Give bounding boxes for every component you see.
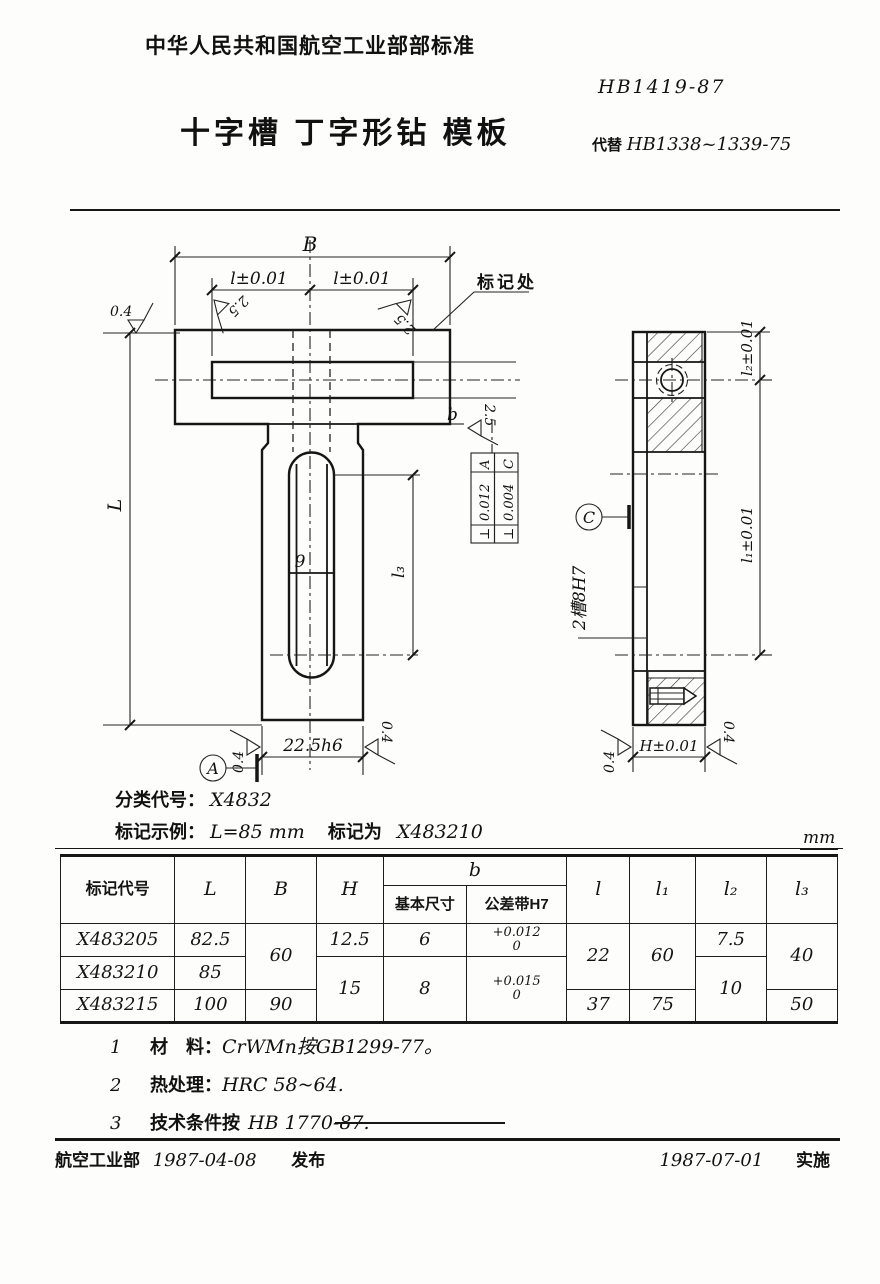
note-1-number: 1 [110, 1037, 150, 1058]
finish-04-botright-icon: 0.4 [365, 721, 395, 764]
cell-L-r2: 85 [175, 957, 246, 990]
cell-L-r3: 100 [175, 990, 246, 1023]
finish-04-side-right-value: 0.4 [720, 721, 736, 743]
document-title: 十字槽 丁字形钻 模板 [180, 108, 511, 152]
finish-25-right-icon: 2.5 [378, 288, 429, 339]
note-1: 1 材 料： CrWMn按GB1299-77。 [110, 1032, 443, 1059]
col-header-B: B [246, 856, 316, 924]
fcf1-symbol: ⊥ [478, 528, 493, 540]
hatch-top [648, 333, 702, 362]
finish-04-side-right-icon: 0.4 [707, 721, 737, 764]
finish-04-topleft-icon: 0.4 [110, 303, 153, 333]
col-header-l1: l₁ [630, 856, 695, 924]
finish-04-botright-value: 0.4 [378, 721, 394, 743]
cell-H-r1: 12.5 [316, 924, 383, 957]
fcf2-symbol: ⊥ [502, 528, 517, 540]
replaces-label: 代替 [592, 137, 622, 154]
notes-block: 1 材 料： CrWMn按GB1299-77。 2 热处理： HRC 58~64… [110, 1032, 443, 1135]
footer-impl: 1987-07-01 实施 [659, 1146, 830, 1171]
dim-l-lines [212, 278, 413, 356]
dim-width-label: 22.5h6 [282, 736, 343, 756]
marking-example-line: 标记示例： L=85 mm 标记为 X483210 [115, 818, 483, 844]
footer-issue-date: 1987-04-08 [153, 1150, 257, 1171]
cell-code-r3: X483215 [61, 990, 175, 1023]
dim-H-label: H±0.01 [638, 737, 698, 755]
slot-callout-label: 2槽8H7 [570, 566, 590, 631]
standard-document-page: { "header": { "org_standard": "中华人民共和国航空… [0, 0, 880, 1284]
cell-b-r2r3: 8 [383, 957, 466, 1023]
class-code: X4832 [210, 789, 272, 811]
dim-l2-labelgroup: l₂±0.01 [738, 319, 756, 376]
finish-04-side-left-icon: 0.4 [601, 730, 631, 773]
cell-B-r3: 90 [246, 990, 316, 1023]
cell-tol-r1: +0.012 0 [466, 924, 566, 957]
feature-control-frames: ⊥ 0.012 A ⊥ 0.004 C [471, 453, 518, 543]
dim-l3-label: l₃ [389, 566, 409, 578]
fcf2-tolerance: 0.004 [502, 484, 517, 521]
note-3-label: 技术条件按 [150, 1109, 240, 1135]
note-2: 2 热处理： HRC 58~64. [110, 1071, 443, 1097]
note-2-text: HRC 58~64. [222, 1074, 344, 1096]
example-label: 标记示例： [115, 822, 205, 842]
note-3-number: 3 [110, 1113, 150, 1134]
col-header-b: b [383, 856, 566, 886]
cell-l-r1r2: 22 [567, 924, 630, 990]
footer: 航空工业部 1987-04-08 发布 1987-07-01 实施 [55, 1146, 840, 1171]
dim-B-label: B [302, 232, 318, 256]
example-code: X483210 [397, 821, 483, 843]
cell-code-r1: X483205 [61, 924, 175, 957]
fcf1-tolerance: 0.012 [478, 484, 493, 521]
cell-H-r2r3: 15 [316, 957, 383, 1023]
replaces-line: 代替 HB1338~1339-75 [592, 134, 791, 155]
cell-code-r2: X483210 [61, 957, 175, 990]
tol-upper-r1: +0.012 [467, 926, 566, 940]
header-divider [70, 209, 840, 211]
footer-org: 航空工业部 [55, 1151, 140, 1170]
technical-drawing: 9 B l±0.01 l±0.01 2.5 2.5 标记处 0.4 [0, 225, 880, 795]
tol-lower-r2: 0 [467, 989, 566, 1003]
col-header-l3: l₃ [766, 856, 837, 924]
replaces-number: HB1338~1339-75 [627, 134, 792, 155]
finish-04-side-left-value: 0.4 [602, 751, 618, 773]
datum-a-letter: A [205, 759, 219, 778]
note-2-label: 热处理： [150, 1071, 222, 1097]
dim-l3-labelgroup: l₃ [389, 566, 409, 578]
col-header-l: l [567, 856, 630, 924]
finish-25-right-value: 2.5 [392, 310, 420, 338]
footer-issue-label: 发布 [291, 1151, 325, 1170]
parameter-table: 标记代号 L B H b l l₁ l₂ l₃ 基本尺寸 公差带H7 X4832… [60, 854, 838, 1024]
front-view: 9 B l±0.01 l±0.01 2.5 2.5 标记处 0.4 [103, 232, 537, 782]
col-header-H: H [316, 856, 383, 924]
datum-c-letter: C [583, 508, 595, 527]
tol-lower-r1: 0 [467, 940, 566, 954]
example-mid: 标记为 [328, 822, 382, 842]
hatch-mid [648, 398, 702, 452]
footer-divider [55, 1138, 840, 1141]
dim-l-left-label: l±0.01 [230, 269, 288, 289]
cell-l1-r1r2: 60 [630, 924, 695, 990]
t-plate-outline [175, 330, 450, 720]
datum-a: A [200, 754, 257, 782]
table-row: X483205 82.5 60 12.5 6 +0.012 0 22 60 7.… [61, 924, 838, 957]
slot-b-label: b [447, 405, 458, 425]
cell-tol-r2r3: +0.015 0 [466, 957, 566, 1023]
tol-upper-r2: +0.015 [467, 975, 566, 989]
finish-25-b-value: 2.5 [481, 403, 497, 426]
dim-l1-label: l₁±0.01 [738, 506, 756, 563]
hidden-slot-lines [293, 330, 330, 452]
dim-L-lines [103, 333, 262, 725]
mark-spot-label: 标记处 [477, 272, 537, 292]
cell-l2-r2r3: 10 [695, 957, 766, 1023]
cell-b-r1: 6 [383, 924, 466, 957]
col-header-b-tol: 公差带H7 [466, 886, 566, 924]
class-label: 分类代号： [115, 790, 205, 810]
note-2-number: 2 [110, 1075, 150, 1096]
dim-l2-label: l₂±0.01 [738, 319, 756, 376]
table-row: X483210 85 15 8 +0.015 0 10 [61, 957, 838, 990]
cell-l1-r3: 75 [630, 990, 695, 1023]
cell-l2-r1: 7.5 [695, 924, 766, 957]
classification-line: 分类代号： X4832 [115, 786, 272, 812]
standard-number: HB1419-87 [598, 76, 725, 98]
cell-l3-r1r2: 40 [766, 924, 837, 990]
dim-l1-labelgroup: l₁±0.01 [738, 506, 756, 563]
cell-l-r3: 37 [567, 990, 630, 1023]
fcf2-datum: C [502, 459, 517, 469]
slot-callout-group: 2槽8H7 [570, 566, 590, 631]
table-top-thin-rule [55, 848, 843, 849]
finish-25-b-icon: 2.5 [468, 403, 498, 445]
notes-divider [335, 1122, 505, 1124]
side-view: C 2槽8H7 l₂±0.01 l₁±0.01 H±0.01 0.4 [570, 319, 772, 773]
finish-25-left-value: 2.5 [224, 292, 252, 320]
note-1-label: 材 料： [150, 1033, 222, 1059]
finish-04-topleft-value: 0.4 [110, 304, 132, 320]
footer-impl-label: 实施 [796, 1151, 830, 1170]
slot-width-dim: 9 [295, 552, 306, 572]
fcf1-datum: A [478, 460, 493, 470]
org-standard-title: 中华人民共和国航空工业部部标准 [145, 30, 475, 60]
mark-spot-leader [432, 292, 529, 331]
col-header-b-basic: 基本尺寸 [383, 886, 466, 924]
footer-impl-date: 1987-07-01 [659, 1150, 763, 1171]
cell-L-r1: 82.5 [175, 924, 246, 957]
cell-l3-r3: 50 [766, 990, 837, 1023]
datum-c: C [576, 504, 629, 530]
col-header-l2: l₂ [695, 856, 766, 924]
dim-l-right-label: l±0.01 [333, 269, 391, 289]
unit-label: mm [800, 828, 838, 850]
col-header-L: L [175, 856, 246, 924]
finish-04-botleft-value: 0.4 [231, 751, 247, 773]
cell-B-r1r2: 60 [246, 924, 316, 990]
note-1-text: CrWMn按GB1299-77。 [222, 1032, 443, 1059]
dim-L-label: L [104, 499, 126, 513]
dim-L-labelgroup: L [104, 499, 126, 513]
col-header-code: 标记代号 [61, 856, 175, 924]
example-condition: L=85 mm [210, 821, 305, 843]
footer-issue: 航空工业部 1987-04-08 发布 [55, 1146, 325, 1171]
